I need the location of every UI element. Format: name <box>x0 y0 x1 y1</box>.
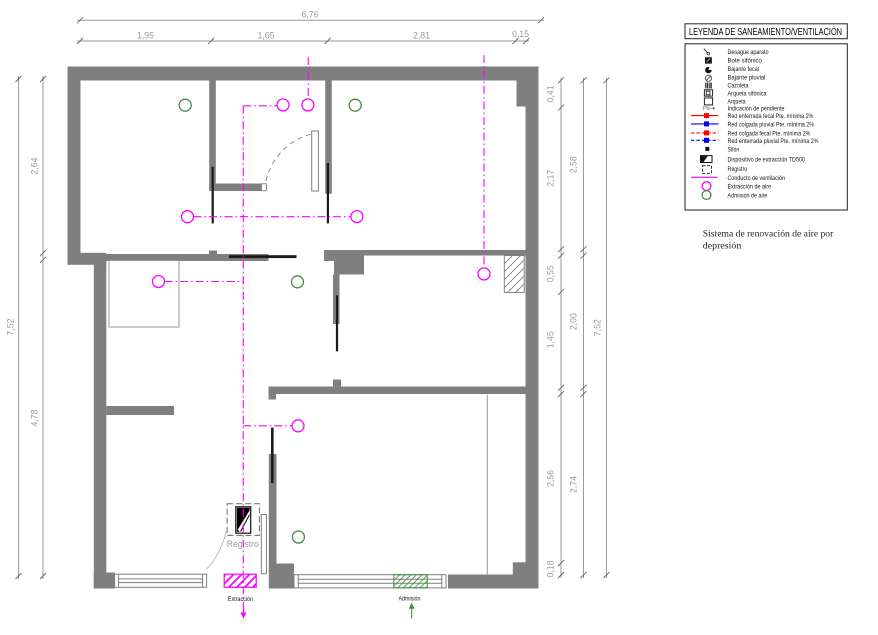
svg-text:1,95: 1,95 <box>137 31 154 41</box>
svg-text:2,64: 2,64 <box>30 157 40 174</box>
svg-text:Admisión: Admisión <box>399 596 421 603</box>
svg-text:Red enterrada pluvial Pte. mín: Red enterrada pluvial Pte. mínima 2% <box>728 138 820 145</box>
svg-text:LEYENDA DE SANEAMIENTO/VENTILA: LEYENDA DE SANEAMIENTO/VENTILACIÓN <box>689 25 842 38</box>
svg-text:Bajante pluvial: Bajante pluvial <box>728 74 766 81</box>
svg-text:P%: P% <box>703 106 711 112</box>
svg-text:0,18: 0,18 <box>546 560 556 577</box>
svg-text:1,45: 1,45 <box>546 331 556 348</box>
svg-text:2,56: 2,56 <box>546 470 556 487</box>
svg-text:Bajante fecal: Bajante fecal <box>728 66 760 73</box>
svg-text:Extracción de aire: Extracción de aire <box>728 184 772 191</box>
svg-text:7,52: 7,52 <box>6 318 16 335</box>
svg-text:depresión: depresión <box>703 241 742 252</box>
svg-text:Desagüe aparato: Desagüe aparato <box>728 49 770 56</box>
svg-text:Arqueta sifónica: Arqueta sifónica <box>728 91 768 98</box>
svg-text:6,76: 6,76 <box>302 10 319 20</box>
svg-text:7,52: 7,52 <box>593 319 603 336</box>
svg-text:4,78: 4,78 <box>30 409 40 426</box>
svg-text:Extracción: Extracción <box>228 596 253 603</box>
svg-text:Sifón: Sifón <box>728 146 740 153</box>
svg-text:Bote sifónico: Bote sifónico <box>728 58 763 65</box>
svg-text:Red colgada fecal Pte. mínima: Red colgada fecal Pte. mínima 2% <box>728 130 811 137</box>
svg-text:2,81: 2,81 <box>413 31 430 41</box>
svg-text:2,58: 2,58 <box>569 156 579 173</box>
svg-text:0,15: 0,15 <box>512 29 529 39</box>
svg-text:Admisión de aire: Admisión de aire <box>728 192 768 199</box>
svg-text:Red enterrada fecal Pte. mínim: Red enterrada fecal Pte. mínima 2% <box>728 113 814 120</box>
svg-text:Red colgada pluvial Pte. mínim: Red colgada pluvial Pte. mínima 2% <box>728 121 815 128</box>
svg-text:0,55: 0,55 <box>546 265 556 282</box>
svg-text:Cazoleta: Cazoleta <box>728 83 750 90</box>
svg-text:Indicación de pendiente: Indicación de pendiente <box>728 105 786 112</box>
svg-text:Dispositivo de extracción TD50: Dispositivo de extracción TD500 <box>728 156 806 163</box>
svg-text:2,74: 2,74 <box>569 476 579 493</box>
svg-text:1,65: 1,65 <box>258 31 275 41</box>
svg-text:0,41: 0,41 <box>546 85 556 102</box>
svg-text:Conducto de ventilación: Conducto de ventilación <box>728 175 786 182</box>
svg-text:Sistema de renovación de aire: Sistema de renovación de aire por <box>703 229 834 240</box>
svg-text:2,00: 2,00 <box>569 313 579 330</box>
svg-text:Registro: Registro <box>728 166 748 173</box>
svg-text:2,17: 2,17 <box>546 170 556 187</box>
svg-text:Arqueta: Arqueta <box>728 98 747 105</box>
